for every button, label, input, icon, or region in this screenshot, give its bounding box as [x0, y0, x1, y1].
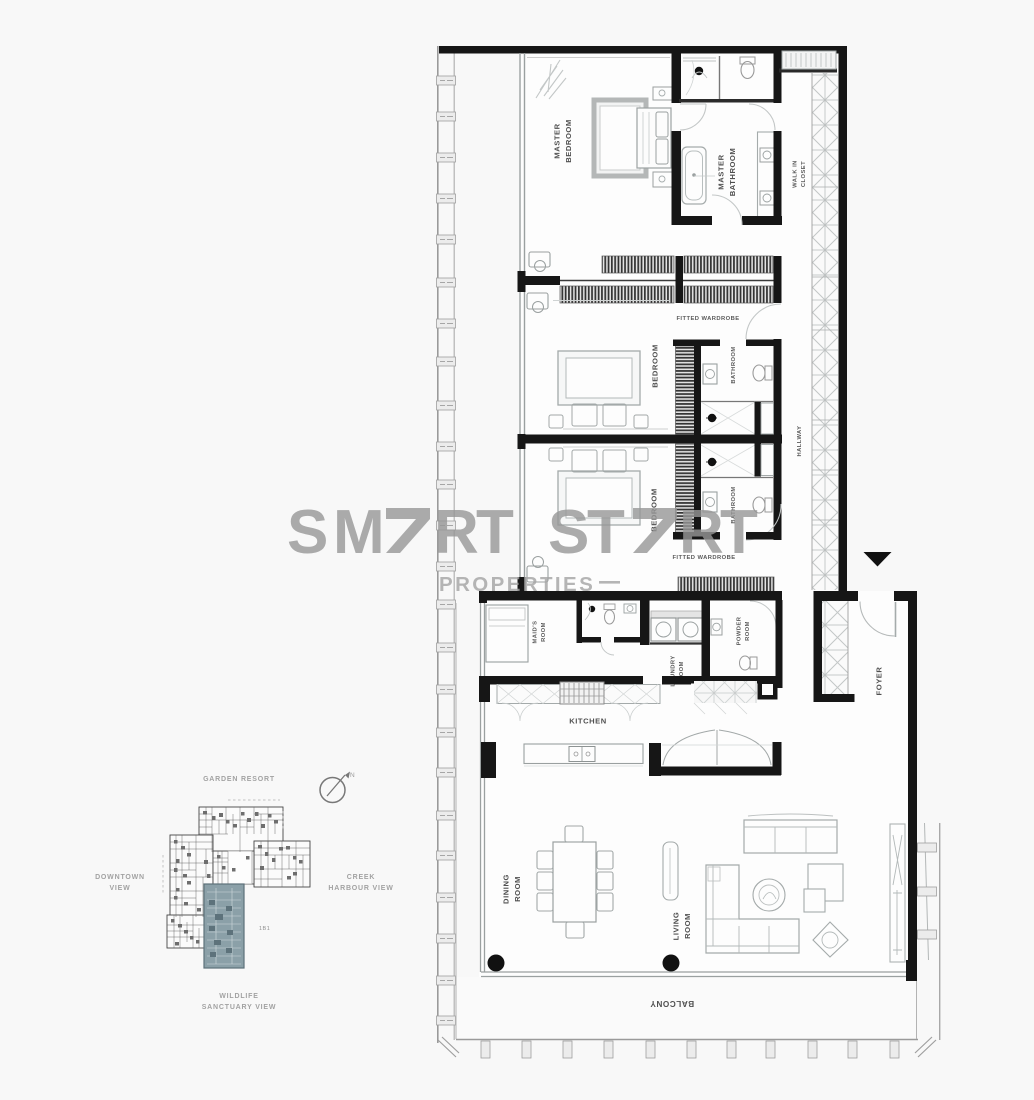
svg-text:ROOM: ROOM [745, 621, 751, 641]
svg-text:BATHROOM: BATHROOM [731, 346, 737, 383]
svg-text:M: M [333, 498, 385, 567]
svg-text:ROOM: ROOM [541, 622, 547, 642]
svg-text:N: N [350, 772, 355, 779]
svg-text:T: T [476, 498, 514, 567]
svg-text:ROOM: ROOM [683, 913, 692, 939]
svg-text:MAID’S: MAID’S [533, 621, 539, 644]
svg-text:T: T [720, 498, 758, 567]
svg-text:R: R [679, 498, 724, 567]
svg-text:BATHROOM: BATHROOM [728, 148, 737, 197]
svg-text:ROOM: ROOM [513, 876, 522, 902]
svg-text:DOWNTOWN: DOWNTOWN [95, 874, 145, 881]
svg-text:S: S [287, 498, 328, 567]
svg-text:BEDROOM: BEDROOM [564, 119, 573, 163]
svg-text:WALK IN: WALK IN [793, 160, 799, 188]
svg-text:CLOSET: CLOSET [801, 161, 807, 187]
svg-text:WILDLIFE: WILDLIFE [219, 993, 258, 1000]
svg-text:GARDEN RESORT: GARDEN RESORT [203, 776, 275, 783]
svg-text:BEDROOM: BEDROOM [651, 344, 660, 388]
svg-text:SANCTUARY VIEW: SANCTUARY VIEW [202, 1004, 277, 1011]
svg-text:MASTER: MASTER [717, 154, 726, 189]
svg-text:CREEK: CREEK [347, 874, 376, 881]
svg-text:HALLWAY: HALLWAY [797, 426, 803, 457]
svg-text:1B1: 1B1 [259, 926, 270, 932]
svg-text:PROPERTIES: PROPERTIES [439, 573, 595, 596]
svg-text:LIVING: LIVING [672, 912, 681, 941]
svg-text:FOYER: FOYER [875, 667, 884, 696]
svg-text:DINING: DINING [502, 874, 511, 904]
svg-text:HARBOUR VIEW: HARBOUR VIEW [328, 885, 393, 892]
svg-text:R: R [434, 498, 479, 567]
svg-text:BALCONY: BALCONY [650, 999, 694, 1008]
svg-text:KITCHEN: KITCHEN [569, 717, 607, 726]
svg-text:VIEW: VIEW [109, 885, 130, 892]
svg-text:S: S [548, 498, 589, 567]
svg-text:MASTER: MASTER [553, 123, 562, 158]
svg-text:POWDER: POWDER [737, 616, 743, 645]
svg-text:T: T [587, 498, 625, 567]
svg-text:FITTED WARDROBE: FITTED WARDROBE [676, 316, 739, 322]
